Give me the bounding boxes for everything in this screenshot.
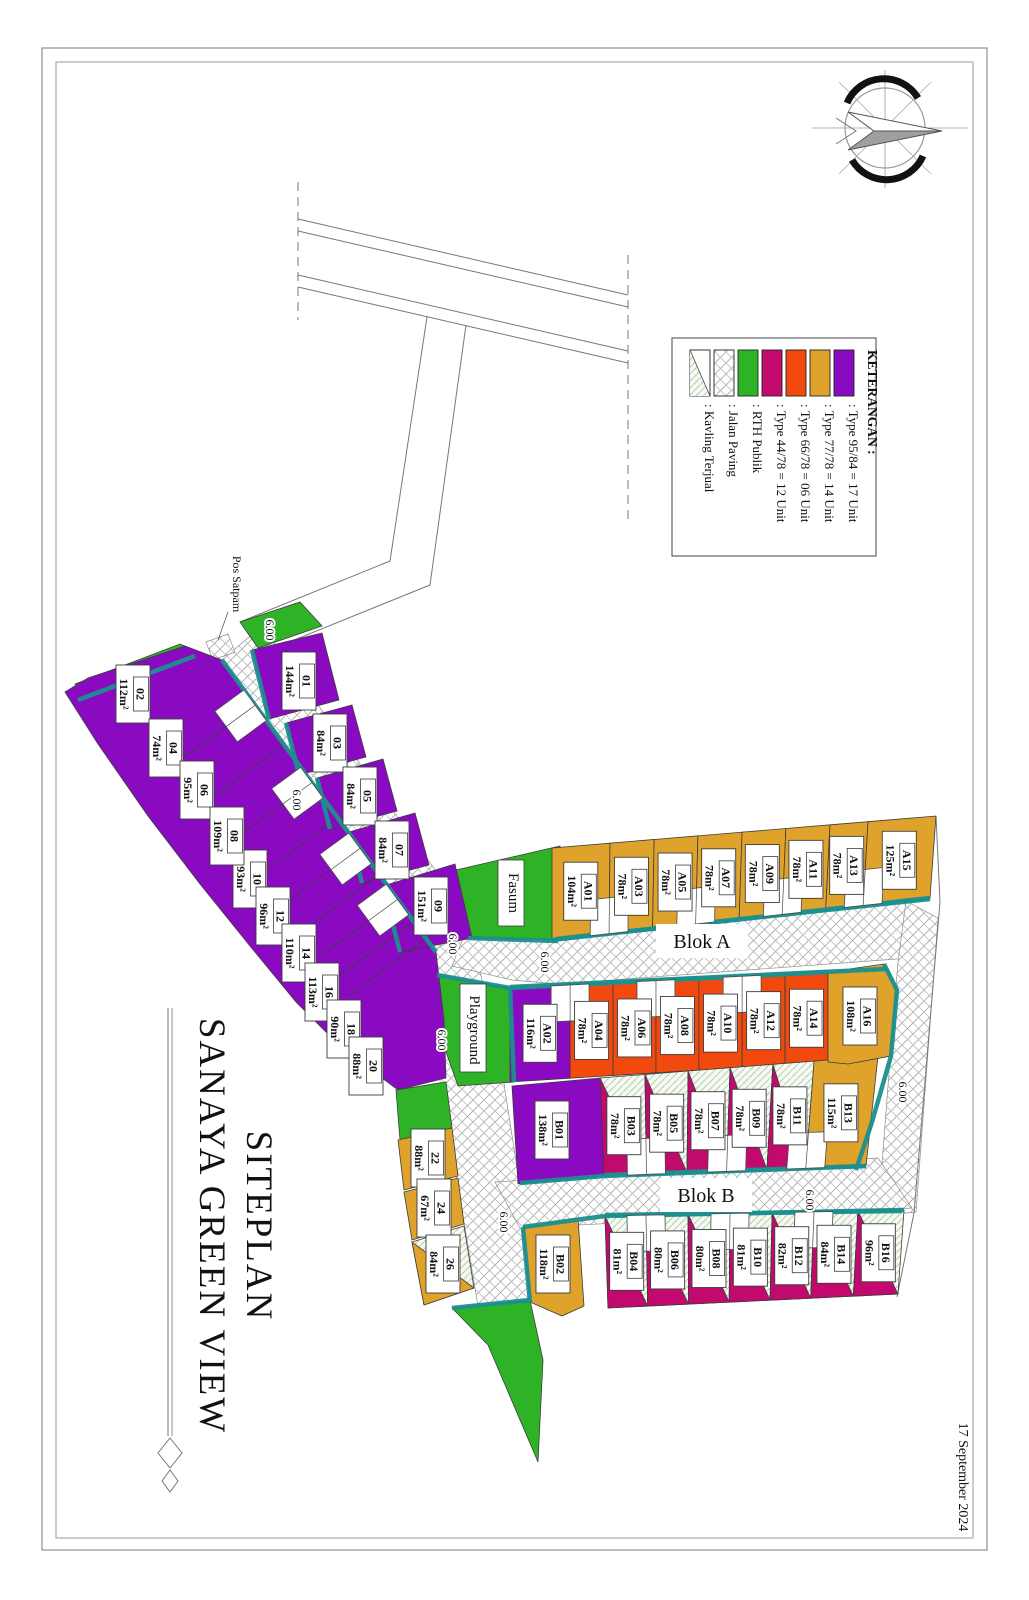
svg-text:12: 12 bbox=[274, 910, 288, 922]
lot-label-B14: B1484m² bbox=[817, 1225, 851, 1283]
svg-text:144m²: 144m² bbox=[283, 665, 297, 697]
svg-text:90m²: 90m² bbox=[328, 1016, 342, 1042]
svg-text:78m²: 78m² bbox=[608, 1113, 622, 1139]
svg-text:A12: A12 bbox=[764, 1010, 778, 1031]
svg-text:B16: B16 bbox=[879, 1243, 893, 1263]
lot-label-A02: A02116m² bbox=[523, 1004, 557, 1062]
fasum-label: Fasum bbox=[505, 873, 521, 913]
svg-text:18: 18 bbox=[345, 1023, 359, 1035]
legend-item-type77: : Type 77/78 = 14 Unit bbox=[822, 404, 837, 523]
svg-text:26: 26 bbox=[444, 1258, 458, 1270]
svg-text:78m²: 78m² bbox=[576, 1018, 590, 1044]
lot-label-B02: B02118m² bbox=[536, 1235, 570, 1293]
legend: KETERANGAN : : Type 95/84 = 17 Unit : Ty… bbox=[672, 338, 880, 556]
lot-label-B12: B1282m² bbox=[775, 1227, 809, 1285]
svg-text:78m²: 78m² bbox=[774, 1103, 788, 1129]
svg-text:A15: A15 bbox=[900, 850, 914, 871]
legend-item-type44: : Type 44/78 = 12 Unit bbox=[774, 404, 789, 523]
blok-a-label: Blok A bbox=[673, 931, 731, 953]
svg-text:125m²: 125m² bbox=[883, 844, 897, 876]
dim-6-south: 6.00 bbox=[435, 1030, 449, 1051]
svg-text:96m²: 96m² bbox=[257, 903, 271, 929]
svg-text:A06: A06 bbox=[635, 1018, 649, 1039]
title-block: SITEPLAN SANAYA GREEN VIEW bbox=[158, 1008, 279, 1492]
lot-label-B05: B0578m² bbox=[650, 1094, 684, 1152]
legend-swatch-type77 bbox=[810, 350, 830, 396]
svg-text:A08: A08 bbox=[678, 1015, 692, 1036]
svg-text:B10: B10 bbox=[751, 1247, 765, 1267]
svg-text:78m²: 78m² bbox=[659, 869, 673, 895]
legend-swatch-type44 bbox=[762, 350, 782, 396]
svg-text:B01: B01 bbox=[553, 1120, 567, 1140]
siteplan-sheet: KETERANGAN : : Type 95/84 = 17 Unit : Ty… bbox=[0, 0, 1029, 1600]
svg-text:A07: A07 bbox=[719, 867, 733, 888]
lot-label-26: 2684m² bbox=[426, 1235, 460, 1293]
lot-label-B03: B0378m² bbox=[607, 1097, 641, 1155]
svg-text:B04: B04 bbox=[627, 1251, 641, 1271]
svg-text:78m²: 78m² bbox=[790, 857, 804, 883]
access-road-left-edge bbox=[240, 317, 427, 622]
svg-text:A01: A01 bbox=[581, 881, 595, 902]
svg-text:78m²: 78m² bbox=[733, 1105, 747, 1131]
svg-text:A13: A13 bbox=[847, 855, 861, 876]
legend-swatch-paving bbox=[714, 350, 734, 396]
svg-text:138m²: 138m² bbox=[536, 1114, 550, 1146]
lot-label-A04: A0478m² bbox=[575, 1001, 609, 1059]
lot-label-09: 09151m² bbox=[414, 877, 448, 935]
svg-text:78m²: 78m² bbox=[618, 1015, 632, 1041]
lot-label-A05: A0578m² bbox=[658, 853, 692, 911]
lot-label-07: 0784m² bbox=[375, 821, 409, 879]
access-road-right-edge bbox=[262, 325, 466, 653]
lot-label-08: 08109m² bbox=[210, 807, 244, 865]
legend-swatch-type95 bbox=[834, 350, 854, 396]
lot-label-A13: A1378m² bbox=[830, 836, 864, 894]
svg-text:112m²: 112m² bbox=[117, 679, 131, 710]
lot-label-A16: A16108m² bbox=[843, 987, 877, 1045]
drainage-edge bbox=[468, 938, 558, 941]
dim-6-south2: 6.00 bbox=[497, 1212, 511, 1233]
lot-label-A10: A1078m² bbox=[704, 994, 738, 1052]
svg-text:93m²: 93m² bbox=[234, 866, 248, 892]
dim-6-east: 6.00 bbox=[896, 1082, 910, 1103]
svg-text:A05: A05 bbox=[676, 872, 690, 893]
dim-6-junction: 6.00 bbox=[446, 934, 460, 955]
svg-text:B07: B07 bbox=[708, 1111, 722, 1131]
svg-text:B11: B11 bbox=[790, 1106, 804, 1125]
lot-label-B01: B01138m² bbox=[535, 1101, 569, 1159]
sheet-title: SITEPLAN bbox=[238, 1131, 279, 1322]
lot-label-B04: B0481m² bbox=[610, 1232, 644, 1290]
svg-text:81m²: 81m² bbox=[734, 1244, 748, 1270]
legend-item-type95: : Type 95/84 = 17 Unit bbox=[846, 404, 861, 523]
legend-swatch-rth bbox=[738, 350, 758, 396]
lot-label-A06: A0678m² bbox=[617, 999, 651, 1057]
svg-text:22: 22 bbox=[429, 1152, 443, 1164]
svg-text:16: 16 bbox=[323, 986, 337, 998]
svg-text:110m²: 110m² bbox=[283, 938, 297, 969]
legend-item-paving: : Jalan Paving bbox=[726, 404, 741, 477]
svg-text:88m²: 88m² bbox=[412, 1145, 426, 1171]
svg-text:A03: A03 bbox=[632, 876, 646, 897]
svg-text:B14: B14 bbox=[835, 1244, 849, 1264]
lot-label-B16: B1696m² bbox=[861, 1224, 895, 1282]
lot-label-B13: B13115m² bbox=[824, 1084, 858, 1142]
svg-text:B08: B08 bbox=[709, 1249, 723, 1269]
project-name: SANAYA GREEN VIEW bbox=[191, 1018, 232, 1434]
svg-text:A16: A16 bbox=[861, 1006, 875, 1027]
svg-text:B03: B03 bbox=[624, 1116, 638, 1136]
svg-text:84m²: 84m² bbox=[376, 837, 390, 863]
lot-label-A11: A1178m² bbox=[789, 840, 823, 898]
dim-6-bloka-west: 6.00 bbox=[538, 952, 552, 973]
svg-text:10: 10 bbox=[251, 873, 265, 885]
svg-text:80m²: 80m² bbox=[652, 1247, 666, 1273]
svg-text:84m²: 84m² bbox=[818, 1241, 832, 1267]
lot-label-24: 2467m² bbox=[417, 1179, 451, 1237]
pos-satpam-label: Pos Satpam bbox=[230, 556, 244, 613]
svg-text:78m²: 78m² bbox=[748, 1008, 762, 1034]
svg-text:24: 24 bbox=[435, 1202, 449, 1214]
svg-text:14: 14 bbox=[300, 947, 314, 959]
lot-label-02: 02112m² bbox=[116, 665, 150, 723]
svg-text:113m²: 113m² bbox=[306, 977, 320, 1008]
lot-label-03: 0384m² bbox=[313, 714, 347, 772]
svg-text:82m²: 82m² bbox=[776, 1243, 790, 1269]
svg-text:04: 04 bbox=[167, 742, 181, 754]
lot-label-B10: B1081m² bbox=[733, 1228, 767, 1286]
svg-text:09: 09 bbox=[432, 900, 446, 912]
lot-label-05: 0584m² bbox=[343, 767, 377, 825]
svg-text:108m²: 108m² bbox=[844, 1000, 858, 1032]
svg-text:78m²: 78m² bbox=[791, 1005, 805, 1031]
svg-text:20: 20 bbox=[367, 1060, 381, 1072]
lot-label-01: 01144m² bbox=[282, 652, 316, 710]
lot-label-20: 2088m² bbox=[349, 1037, 383, 1095]
svg-text:A11: A11 bbox=[806, 859, 820, 879]
svg-text:A10: A10 bbox=[721, 1013, 735, 1034]
svg-text:B13: B13 bbox=[841, 1103, 855, 1123]
svg-text:104m²: 104m² bbox=[565, 875, 579, 907]
svg-text:78m²: 78m² bbox=[651, 1110, 665, 1136]
svg-text:01: 01 bbox=[300, 675, 314, 687]
lot-label-B11: B1178m² bbox=[773, 1087, 807, 1145]
svg-text:78m²: 78m² bbox=[746, 861, 760, 887]
lot-label-B09: B0978m² bbox=[732, 1089, 766, 1147]
playground-label: Playground bbox=[466, 995, 482, 1065]
svg-text:95m²: 95m² bbox=[181, 777, 195, 803]
svg-text:151m²: 151m² bbox=[415, 890, 429, 922]
svg-text:88m²: 88m² bbox=[350, 1053, 364, 1079]
svg-text:06: 06 bbox=[198, 784, 212, 796]
svg-text:84m²: 84m² bbox=[427, 1251, 441, 1277]
svg-text:07: 07 bbox=[393, 844, 407, 856]
svg-text:A02: A02 bbox=[541, 1023, 555, 1044]
svg-text:81m²: 81m² bbox=[611, 1249, 625, 1275]
svg-text:B05: B05 bbox=[667, 1113, 681, 1133]
rth-south-wedge bbox=[452, 1300, 543, 1462]
svg-text:A14: A14 bbox=[807, 1008, 821, 1029]
lot-label-A12: A1278m² bbox=[747, 992, 781, 1050]
svg-text:08: 08 bbox=[228, 830, 242, 842]
lot-label-B08: B0880m² bbox=[692, 1230, 726, 1288]
svg-text:B12: B12 bbox=[792, 1246, 806, 1266]
title-diamond-icon bbox=[158, 1438, 182, 1468]
svg-text:109m²: 109m² bbox=[211, 820, 225, 852]
svg-text:B06: B06 bbox=[668, 1250, 682, 1270]
legend-item-terjual: : Kavling Terjual bbox=[702, 404, 717, 493]
lot-label-A07: A0778m² bbox=[702, 849, 736, 907]
lot-label-A09: A0978m² bbox=[745, 845, 779, 903]
svg-text:84m²: 84m² bbox=[344, 783, 358, 809]
svg-text:78m²: 78m² bbox=[703, 865, 717, 891]
svg-text:03: 03 bbox=[331, 737, 345, 749]
lot-label-A14: A1478m² bbox=[790, 989, 824, 1047]
lot-label-06: 0695m² bbox=[180, 761, 214, 819]
dim-6-blokb: 6.00 bbox=[803, 1190, 817, 1211]
svg-text:78m²: 78m² bbox=[661, 1013, 675, 1039]
dim-6-entrance: 6.00 bbox=[263, 620, 277, 641]
lot-label-B06: B0680m² bbox=[651, 1231, 685, 1289]
svg-text:78m²: 78m² bbox=[692, 1108, 706, 1134]
lot-label-A15: A15125m² bbox=[882, 831, 916, 889]
svg-text:78m²: 78m² bbox=[831, 853, 845, 879]
svg-text:B02: B02 bbox=[554, 1254, 568, 1274]
svg-text:67m²: 67m² bbox=[418, 1195, 432, 1221]
sheet-date: 17 September 2024 bbox=[955, 1423, 970, 1532]
svg-text:05: 05 bbox=[361, 790, 375, 802]
svg-text:80m²: 80m² bbox=[693, 1246, 707, 1272]
svg-text:115m²: 115m² bbox=[825, 1097, 839, 1128]
svg-text:116m²: 116m² bbox=[524, 1018, 538, 1049]
svg-text:02: 02 bbox=[134, 688, 148, 700]
legend-item-rth: : RTH Publik bbox=[750, 404, 765, 474]
legend-heading: KETERANGAN : bbox=[865, 350, 880, 455]
legend-item-type66: : Type 66/78 = 06 Unit bbox=[798, 404, 813, 523]
svg-text:78m²: 78m² bbox=[705, 1010, 719, 1036]
external-road bbox=[240, 182, 628, 653]
svg-text:78m²: 78m² bbox=[615, 873, 629, 899]
legend-swatch-terjual bbox=[690, 350, 710, 396]
lot-label-04: 0474m² bbox=[149, 719, 183, 777]
blok-b-label: Blok B bbox=[677, 1185, 734, 1207]
svg-text:74m²: 74m² bbox=[150, 735, 164, 761]
lot-label-B07: B0778m² bbox=[691, 1092, 725, 1150]
lot-label-22: 2288m² bbox=[411, 1129, 445, 1187]
svg-text:84m²: 84m² bbox=[314, 730, 328, 756]
dim-6-mid: 6.00 bbox=[290, 790, 304, 811]
svg-text:A09: A09 bbox=[763, 863, 777, 884]
siteplan-drawing: KETERANGAN : : Type 95/84 = 17 Unit : Ty… bbox=[0, 0, 1029, 1600]
svg-text:96m²: 96m² bbox=[862, 1240, 876, 1266]
title-diamond-small-icon bbox=[162, 1470, 178, 1492]
lot-label-A08: A0878m² bbox=[660, 997, 694, 1055]
legend-swatch-type66 bbox=[786, 350, 806, 396]
lot-label-A01: A01104m² bbox=[564, 862, 598, 920]
svg-text:B09: B09 bbox=[750, 1108, 764, 1128]
north-arrow-icon bbox=[812, 70, 968, 188]
svg-text:118m²: 118m² bbox=[537, 1249, 551, 1280]
lot-label-A03: A0378m² bbox=[614, 857, 648, 915]
svg-text:A04: A04 bbox=[592, 1020, 606, 1041]
